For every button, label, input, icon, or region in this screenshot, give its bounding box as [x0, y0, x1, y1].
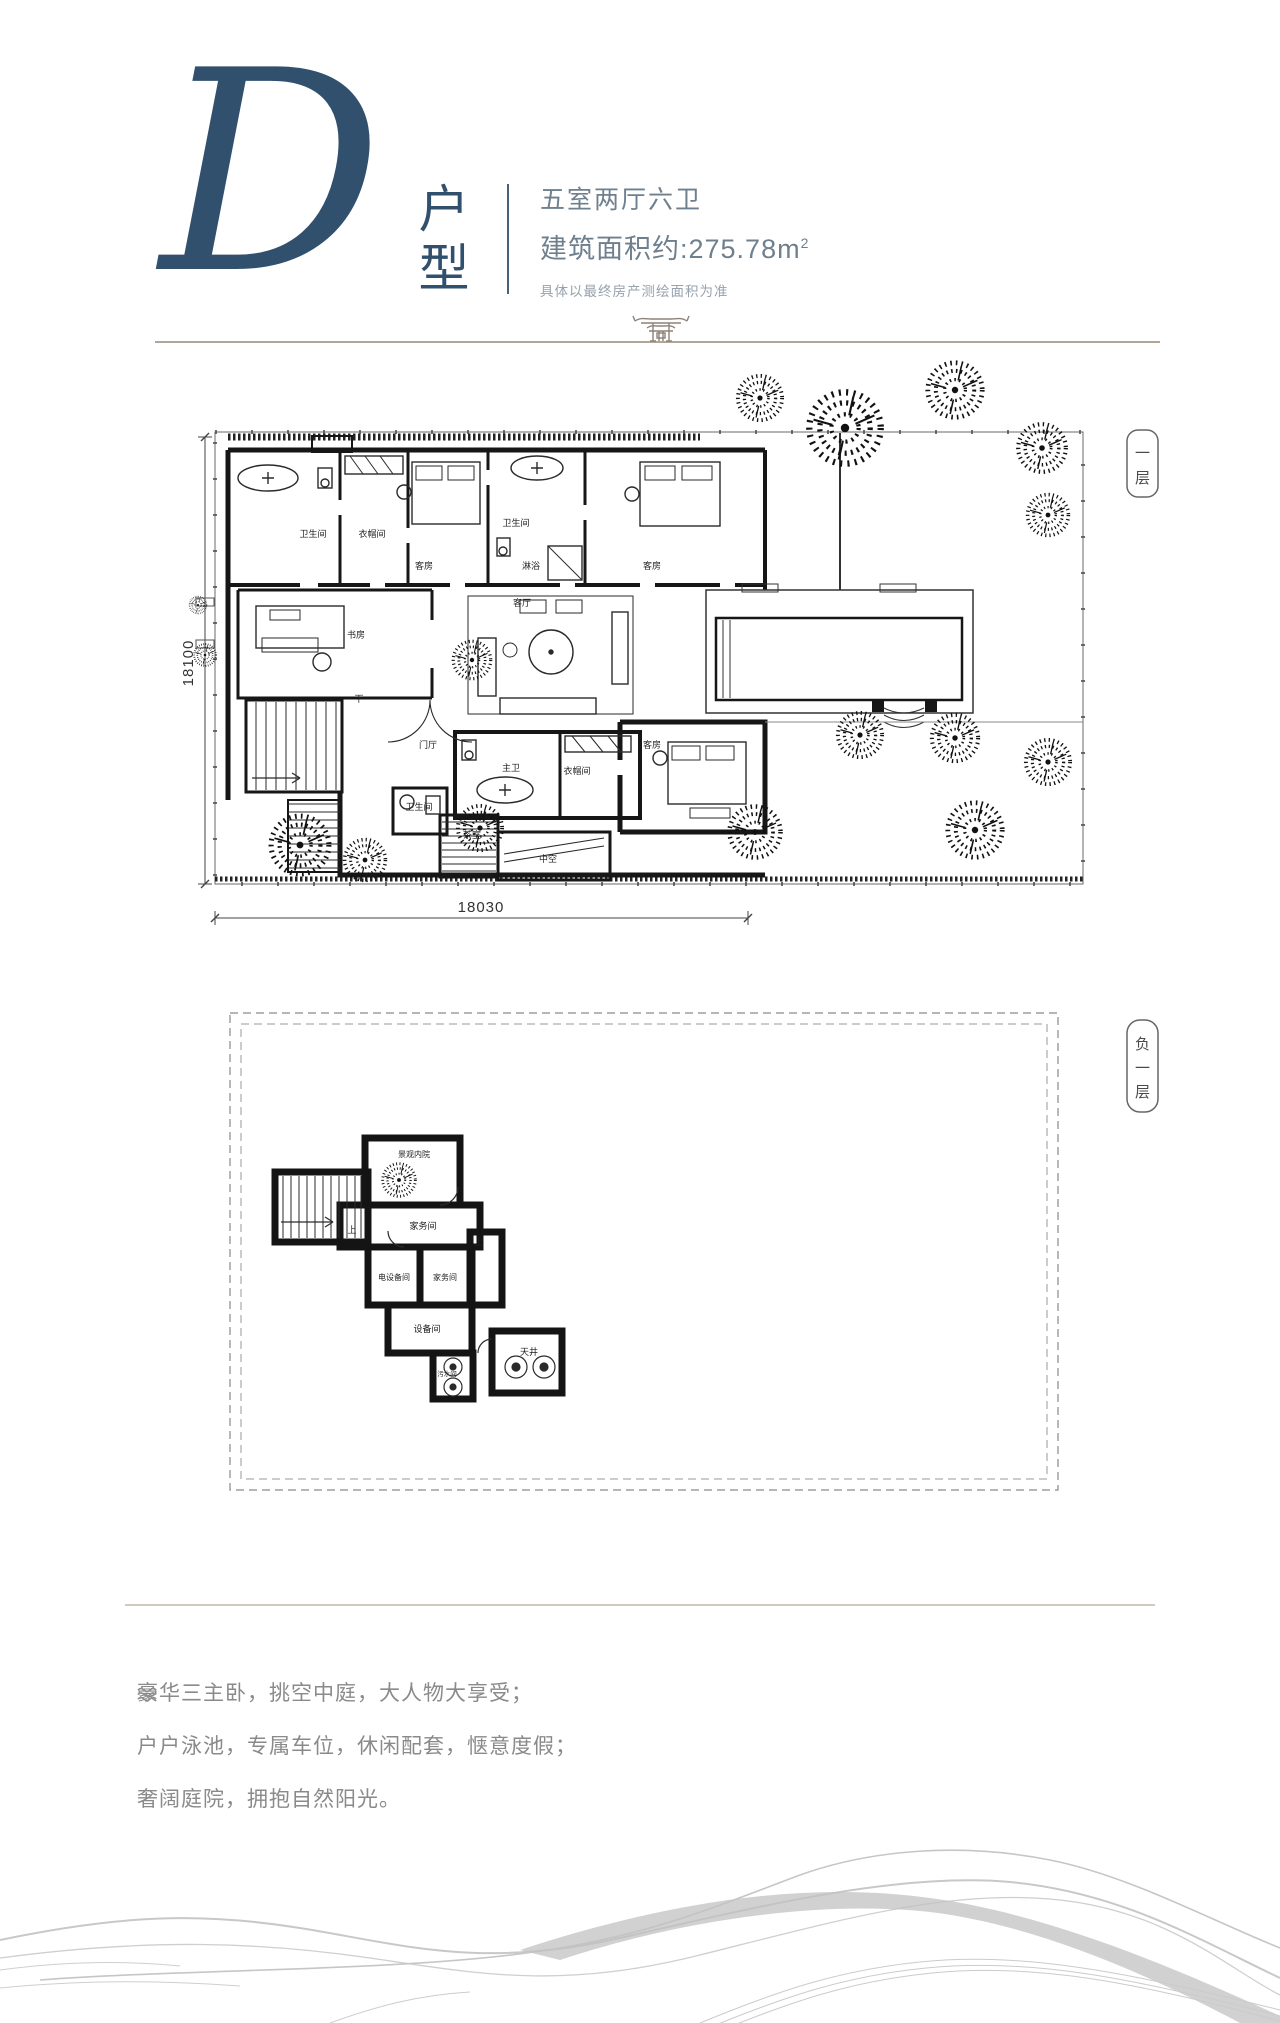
- feature-text: 奢阔庭院，拥抱自然阳光。: [137, 1787, 401, 1813]
- stair-down-label: 下: [354, 694, 363, 704]
- dimension-left: 18100: [180, 433, 212, 888]
- svg-text:18030: 18030: [458, 899, 505, 916]
- room-label: 衣帽间: [358, 528, 385, 539]
- feature-item: 户户泳池，专属车位，休闲配套，惬意度假；: [137, 1734, 577, 1760]
- stair-up-label: 上: [347, 1225, 356, 1235]
- feature-list: 豪华三主卧，挑空中庭，大人物大享受； 户户泳池，专属车位，休闲配套，惬意度假； …: [137, 1681, 577, 1840]
- feature-text: 户户泳池，专属车位，休闲配套，惬意度假；: [137, 1734, 577, 1760]
- basement-walls: [275, 1138, 562, 1399]
- basement-room-labels: 景观内院 家务间 电设备间 家务间 设备间 污水间 天井 上 上: [347, 1149, 538, 1378]
- svg-text:负: 负: [1135, 1036, 1150, 1053]
- svg-text:18100: 18100: [180, 640, 197, 687]
- room-label: 客房: [643, 560, 661, 571]
- feature-item: 豪华三主卧，挑空中庭，大人物大享受；: [137, 1681, 577, 1707]
- brochure-page: D 户 型 五室两厅六卫 建筑面积约:275.78m2 具体以最终房产测绘面积为…: [0, 0, 1280, 2023]
- floor1-tag: 一 层: [1127, 430, 1158, 497]
- floor1-plan: 18100 18030: [180, 363, 1158, 925]
- svg-text:一: 一: [1135, 445, 1150, 462]
- room-label: 衣帽间: [563, 765, 590, 776]
- room-label: 天井: [520, 1346, 538, 1357]
- room-label: 卫生间: [502, 517, 529, 528]
- room-label: 卫生间: [299, 528, 326, 539]
- room-label: 电设备间: [378, 1272, 410, 1282]
- room-label: 污水间: [437, 1369, 457, 1378]
- feature-item: 奢阔庭院，拥抱自然阳光。: [137, 1787, 577, 1813]
- room-label: 主卫: [502, 762, 520, 773]
- room-label: 客房: [415, 560, 433, 571]
- feature-text: 豪华三主卧，挑空中庭，大人物大享受；: [137, 1681, 533, 1707]
- room-label: 景观内院: [398, 1149, 430, 1159]
- svg-text:层: 层: [1135, 1084, 1150, 1101]
- stair-up-label: 上: [474, 1237, 483, 1247]
- room-label: 设备间: [413, 1323, 440, 1334]
- room-label: 客房: [643, 739, 661, 750]
- gate-icon: [633, 316, 689, 341]
- floor1-walls: [228, 433, 840, 880]
- room-label: 客厅: [513, 597, 531, 608]
- room-label: 中空: [539, 853, 557, 864]
- room-label: 茶室: [463, 829, 481, 840]
- svg-text:一: 一: [1135, 1060, 1150, 1077]
- room-label: 家务间: [433, 1272, 457, 1282]
- basement-plan: 景观内院 家务间 电设备间 家务间 设备间 污水间 天井 上 上 负 一 层: [230, 1013, 1158, 1490]
- room-label: 淋浴: [522, 560, 540, 571]
- pool: [716, 618, 962, 700]
- room-label: 书房: [347, 629, 365, 640]
- room-label: 卫生间: [405, 801, 432, 812]
- room-label: 门厅: [419, 739, 437, 750]
- basement-tag: 负 一 层: [1127, 1020, 1158, 1112]
- dimension-bottom: 18030: [211, 899, 752, 925]
- floor1-furniture: [238, 456, 746, 871]
- wave-decoration: [0, 1850, 1280, 2023]
- room-label: 家务间: [409, 1220, 436, 1231]
- svg-text:层: 层: [1135, 470, 1150, 487]
- waves-icon: [137, 1687, 161, 1702]
- floor1-room-labels: 卫生间 衣帽间 客房 卫生间 淋浴 客房 客厅 书房 门厅 主卫 衣帽间 客房 …: [299, 517, 661, 864]
